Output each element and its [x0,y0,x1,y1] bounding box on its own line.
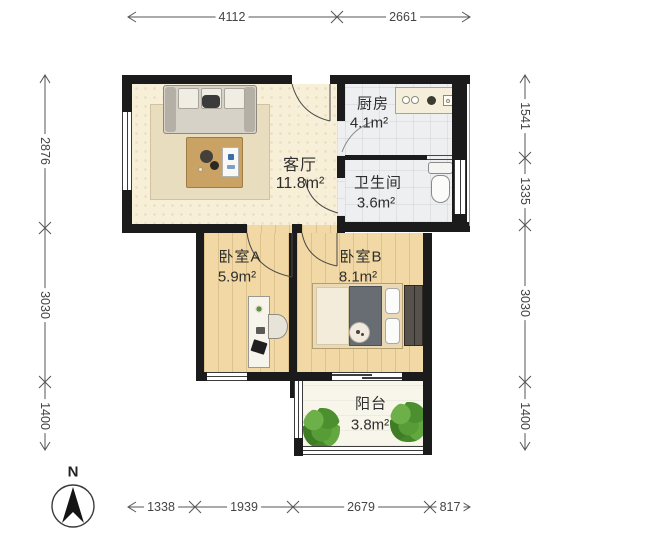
tray-item [227,165,235,169]
dim-top-1: 4112 [216,10,249,24]
wall [423,233,432,455]
sliding-panel [332,374,372,376]
wall [345,155,427,160]
toilet-icon [428,162,453,206]
room-label-bedroom-a: 卧室A [218,246,261,267]
window [303,446,423,455]
sliding-door [332,372,402,381]
burner-icon [427,96,436,105]
plant-icon [390,402,427,442]
paw-icon [361,333,364,336]
wall [337,222,470,232]
pillow [385,288,400,314]
sofa-throw-item [202,95,220,108]
room-label-bedroom-b: 卧室B [339,246,382,267]
desk-item [256,327,265,334]
wall [196,224,204,381]
teacup [210,161,219,170]
laptop-icon [250,339,267,355]
compass-icon [52,485,94,527]
room-area-kitchen: 4.1m² [350,115,388,132]
window-outer-line [469,84,470,226]
room-area-bedroom-a: 5.9m² [218,269,256,286]
doorway-threshold [337,178,345,216]
pillow [385,318,400,344]
wall [294,438,303,456]
sink-icon [402,96,410,104]
doorway-threshold [302,225,337,233]
wall [289,233,297,381]
sofa-cushion [178,88,199,109]
round-rug [349,322,370,343]
window [122,112,132,190]
wall [402,372,432,381]
dim-right-2: 1335 [518,174,532,208]
wardrobe [404,285,423,346]
room-area-balcony: 3.8m² [351,417,389,434]
dim-bottom-3: 2679 [344,500,378,514]
window [294,381,303,438]
wall [330,75,470,84]
dim-right-1: 1541 [518,99,532,133]
room-label-kitchen: 厨房 [357,93,389,114]
plant-icon [303,408,340,448]
wall [122,224,247,233]
sliding-panel [362,377,402,379]
teacup [198,167,203,172]
wall [337,84,345,121]
window [454,160,466,214]
dim-bottom-2: 1939 [227,500,261,514]
compass-north-label: N [68,464,79,481]
sofa [163,85,257,134]
dim-right-3: 3030 [518,286,532,320]
room-label-living: 客厅 [283,151,317,175]
wall [122,75,292,84]
toilet-bowl [431,175,450,203]
wall [292,224,302,233]
sofa-armrest [244,87,255,132]
tray [222,147,239,177]
sink-icon [411,96,419,104]
stove-burner [446,99,450,103]
dim-right-4: 1400 [518,399,532,433]
plant-pot-icon [255,305,263,313]
room-area-bathroom: 3.6m² [357,195,395,212]
paw-icon [356,330,360,334]
wall [337,156,345,178]
dim-bottom-1: 1338 [144,500,178,514]
window [207,372,247,381]
dim-left-3: 1400 [38,399,52,433]
floorplan-canvas: 客厅 11.8m² 厨房 4.1m² 卫生间 3.6m² 卧室A 5.9m² 卧… [0,0,657,539]
room-label-bathroom: 卫生间 [354,172,402,193]
dim-top-2: 2661 [386,10,420,24]
toilet-tank [428,162,453,174]
sofa-cushion [224,88,245,109]
sofa-armrest [165,87,176,132]
dim-left-1: 2876 [38,134,52,168]
desk [248,296,270,368]
coffee-table [186,137,243,188]
room-area-bedroom-b: 8.1m² [339,269,377,286]
dim-left-2: 3030 [38,288,52,322]
tray-item [228,154,234,160]
doorway-threshold [337,121,345,156]
dim-bottom-4: 817 [437,500,464,514]
doorway-threshold [247,225,292,233]
wardrobe-divider [414,286,415,345]
wall-partition [427,155,452,160]
room-label-balcony: 阳台 [355,393,387,414]
room-area-living: 11.8m² [276,175,325,193]
bed-sheet [316,287,349,345]
